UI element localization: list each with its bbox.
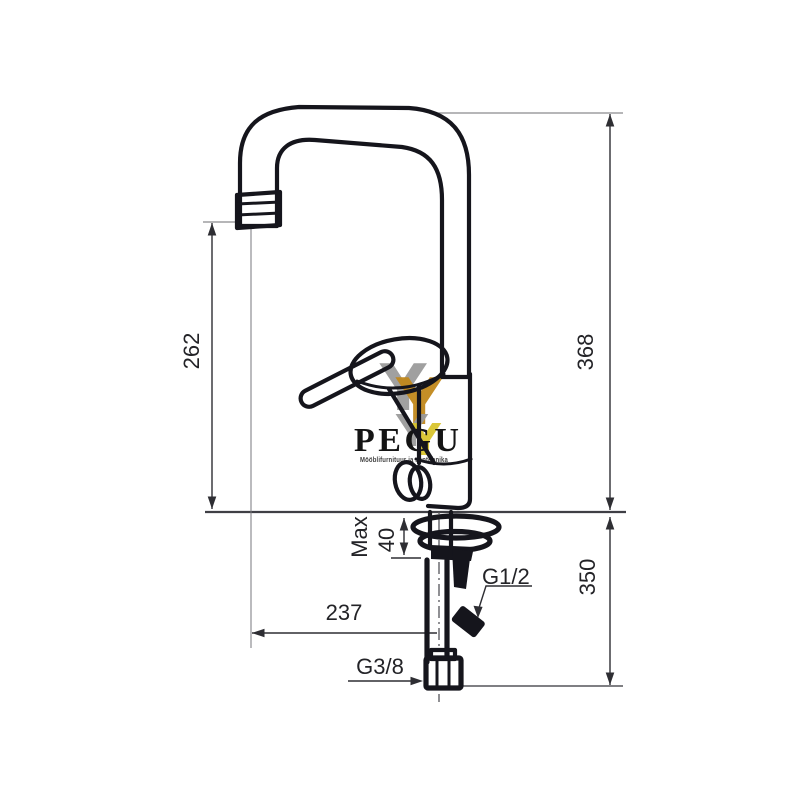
brand-wordmark: PEGU [354,422,462,459]
aerator-line [237,202,280,204]
dimension-368: 368 [573,114,614,510]
dim-350-label: 350 [575,559,600,596]
faucet-technical-drawing: 368 350 262 237 Max 40 [0,0,800,800]
arrowhead [208,497,217,510]
label-g38: G3/8 [348,654,423,685]
outlet-fill [237,192,280,228]
dimension-350: 350 [575,517,614,685]
dimension-262: 262 [179,223,216,509]
dimension-max-40: Max 40 [347,516,421,558]
label-g12: G1/2 [474,564,533,618]
nut-fill [426,658,461,688]
product-drawing-canvas: 368 350 262 237 Max 40 [0,0,800,800]
arrowhead [606,673,615,686]
mounting-stud [452,549,471,589]
dim-262-label: 262 [179,333,204,370]
thread-g38-label: G3/8 [356,654,404,679]
dim-368-label: 368 [573,334,598,371]
arrowhead [411,677,424,686]
arrowhead [400,518,409,531]
spout-fill [240,107,469,377]
max-label: Max [347,516,372,558]
arrowhead [208,223,217,236]
thread-g12-label: G1/2 [482,564,530,589]
leader-line [478,586,532,611]
dim-237-label: 237 [326,600,363,625]
aerator-line [237,213,280,215]
arrowhead [606,498,615,511]
arrowhead [606,114,615,127]
dimension-237: 237 [252,600,437,637]
arrowhead [252,629,265,638]
arrowhead [400,543,409,556]
arrowhead [606,517,615,530]
dim-40-label: 40 [374,528,399,552]
